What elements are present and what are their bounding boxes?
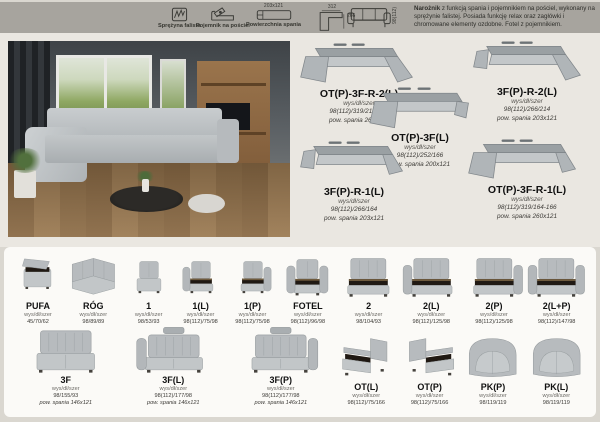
module-size-label: wys/dł/szer bbox=[461, 393, 524, 400]
configuration-sleep-size: pow. spania 203x121 bbox=[284, 215, 424, 223]
sofa-height-value: 98(112) bbox=[393, 7, 398, 24]
module-dimensions: 98/155/93 bbox=[12, 393, 120, 400]
module-card: PK(L) wys/dł/szer 98/119/119 bbox=[525, 333, 588, 407]
module-size-label: wys/dł/szer bbox=[12, 312, 64, 319]
room-photo bbox=[8, 41, 290, 237]
configuration-dimensions: 98(112)/319/164-166 bbox=[454, 204, 600, 212]
module-sleep-size: pow. spania 146x121 bbox=[227, 400, 335, 407]
module-name: 3F bbox=[12, 375, 120, 386]
module-dimensions: 98(112)/75/166 bbox=[398, 400, 461, 407]
module-name: 1 bbox=[123, 301, 175, 312]
module-name: 2(L+P) bbox=[525, 301, 588, 312]
coffee-table bbox=[110, 186, 183, 211]
module-dimensions: 98/119/119 bbox=[461, 400, 524, 407]
shelf bbox=[201, 83, 266, 86]
module-card: 3F wys/dł/szer 98/155/93 pow. spania 146… bbox=[12, 326, 120, 407]
module-size-label: wys/dł/szer bbox=[227, 386, 335, 393]
configuration-sleep-size: pow. spania 260x121 bbox=[454, 213, 600, 221]
module-size-label: wys/dł/szer bbox=[398, 393, 461, 400]
module-dimensions: 98(112)/147/98 bbox=[525, 319, 588, 326]
module-size-label: wys/dł/szer bbox=[525, 312, 588, 319]
sofa-module-icon bbox=[175, 250, 227, 300]
module-card: 3F(L) wys/dł/szer 98(112)/177/98 pow. sp… bbox=[120, 326, 228, 407]
sofa-front-icon bbox=[346, 5, 392, 29]
sofa-module-icon bbox=[335, 333, 398, 381]
floor-plant bbox=[14, 170, 37, 197]
module-size-label: wys/dł/szer bbox=[123, 312, 175, 319]
module-dimensions: 98(112)/125/98 bbox=[463, 319, 526, 326]
legend-bar: Sprężyna falista Pojemnik na pościel 203… bbox=[0, 2, 600, 33]
sofa-module-icon bbox=[463, 250, 526, 300]
module-dimensions: 98(112)/75/98 bbox=[227, 319, 279, 326]
module-size-label: wys/dł/szer bbox=[175, 312, 227, 319]
corner-sofa-icon bbox=[285, 39, 433, 87]
product-description-lead: Narożnik bbox=[414, 5, 440, 12]
configuration-size-label: wys/dł/szer bbox=[284, 198, 424, 206]
module-dimensions: 98(112)/75/166 bbox=[335, 400, 398, 407]
legend-label: Pojemnik na pościel bbox=[196, 23, 250, 29]
sofa-spec: 98(112) bbox=[346, 5, 400, 29]
module-sleep-size: pow. spania 146x121 bbox=[120, 400, 228, 407]
module-card: PUFA wys/dł/szer 45/70/62 bbox=[12, 250, 64, 326]
module-size-label: wys/dł/szer bbox=[64, 312, 123, 319]
module-name: OT(L) bbox=[335, 382, 398, 393]
sofa-module-icon bbox=[64, 250, 123, 300]
sofa-module-icon bbox=[227, 250, 279, 300]
module-size-label: wys/dł/szer bbox=[525, 393, 588, 400]
module-card: OT(P) wys/dł/szer 98(112)/75/166 bbox=[398, 333, 461, 407]
corner-sofa-icon bbox=[458, 37, 596, 85]
module-size-label: wys/dł/szer bbox=[335, 393, 398, 400]
corner-sofa-seat bbox=[45, 135, 228, 162]
module-name: RÓG bbox=[64, 301, 123, 312]
module-size-label: wys/dł/szer bbox=[227, 312, 279, 319]
module-card: 2 wys/dł/szer 98/104/93 bbox=[337, 250, 400, 326]
module-card: 1(L) wys/dł/szer 98(112)/75/98 bbox=[175, 250, 227, 326]
legend-item-spring: Sprężyna falista bbox=[158, 7, 201, 29]
module-dimensions: 98(112)/177/98 bbox=[120, 393, 228, 400]
configuration-name: OT(P)-3F-R-1(L) bbox=[454, 184, 600, 196]
module-dimensions: 98/104/93 bbox=[337, 319, 400, 326]
sofa-module-icon bbox=[337, 250, 400, 300]
module-card: OT(L) wys/dł/szer 98(112)/75/166 bbox=[335, 333, 398, 407]
module-size-label: wys/dł/szer bbox=[12, 386, 120, 393]
module-name: 2 bbox=[337, 301, 400, 312]
module-dimensions: 98/53/93 bbox=[123, 319, 175, 326]
module-dimensions: 98(112)/75/98 bbox=[175, 319, 227, 326]
sofa-module-icon bbox=[12, 250, 64, 300]
module-name: 3F(P) bbox=[227, 375, 335, 386]
modules-panel: PUFA wys/dł/szer 45/70/62 RÓG wys/dł/sze… bbox=[4, 247, 596, 417]
sofa-module-icon bbox=[227, 326, 335, 374]
sofa-module-icon bbox=[120, 326, 228, 374]
module-name: 1(L) bbox=[175, 301, 227, 312]
module-sleep-size: pow. spania 146x121 bbox=[12, 400, 120, 407]
sofa-module-icon bbox=[12, 326, 120, 374]
module-card: 1 wys/dł/szer 98/53/93 bbox=[123, 250, 175, 326]
sofa-module-icon bbox=[278, 250, 337, 300]
modules-row-1: PUFA wys/dł/szer 45/70/62 RÓG wys/dł/sze… bbox=[12, 250, 588, 326]
configuration-size-label: wys/dł/szer bbox=[454, 196, 600, 204]
legend-label: Sprężyna falista bbox=[158, 23, 201, 29]
sofa-module-icon bbox=[400, 250, 463, 300]
module-size-label: wys/dł/szer bbox=[278, 312, 337, 319]
module-name: PUFA bbox=[12, 301, 64, 312]
legend-label: Powierzchnia spania bbox=[246, 22, 301, 28]
module-name: 2(P) bbox=[463, 301, 526, 312]
module-card: 2(P) wys/dł/szer 98(112)/125/98 bbox=[463, 250, 526, 326]
legend-item-storage: Pojemnik na pościel bbox=[196, 6, 250, 29]
configuration-card: OT(P)-3F-R-1(L) wys/dł/szer 98(112)/319/… bbox=[454, 135, 600, 221]
module-size-label: wys/dł/szer bbox=[120, 386, 228, 393]
module-card: 2(L) wys/dł/szer 98(112)/125/98 bbox=[400, 250, 463, 326]
module-name: 1(P) bbox=[227, 301, 279, 312]
module-dimensions: 98/119/119 bbox=[525, 400, 588, 407]
module-size-label: wys/dł/szer bbox=[337, 312, 400, 319]
module-dimensions: 98/89/89 bbox=[64, 319, 123, 326]
configuration-name: 3F(P)-R-1(L) bbox=[284, 186, 424, 198]
bedding-storage-icon bbox=[210, 6, 236, 22]
corner-dimensions-icon bbox=[318, 10, 346, 32]
wavy-spring-icon bbox=[171, 7, 188, 22]
module-size-label: wys/dł/szer bbox=[463, 312, 526, 319]
corner-sofa-icon bbox=[352, 83, 488, 131]
module-name: 2(L) bbox=[400, 301, 463, 312]
module-dimensions: 98(112)/177/98 bbox=[227, 393, 335, 400]
product-description: Narożnik z funkcją spania i pojemnikiem … bbox=[414, 5, 596, 29]
module-name: FOTEL bbox=[278, 301, 337, 312]
sofa-module-icon bbox=[525, 333, 588, 381]
module-card: RÓG wys/dł/szer 98/89/89 bbox=[64, 250, 123, 326]
module-card: PK(P) wys/dł/szer 98/119/119 bbox=[461, 333, 524, 407]
module-dimensions: 45/70/62 bbox=[12, 319, 64, 326]
catalog-page: Sprężyna falista Pojemnik na pościel 203… bbox=[0, 0, 600, 422]
module-name: PK(P) bbox=[461, 382, 524, 393]
sofa-module-icon bbox=[398, 333, 461, 381]
vase bbox=[142, 179, 149, 192]
module-dimensions: 98(112)/96/98 bbox=[278, 319, 337, 326]
module-card: FOTEL wys/dł/szer 98(112)/96/98 bbox=[278, 250, 337, 326]
configuration-dimensions: 98(112)/266/164 bbox=[284, 206, 424, 214]
module-card: 3F(P) wys/dł/szer 98(112)/177/98 pow. sp… bbox=[227, 326, 335, 407]
module-name: 3F(L) bbox=[120, 375, 228, 386]
sofa-module-icon bbox=[461, 333, 524, 381]
configuration-card: 3F(P)-R-1(L) wys/dł/szer 98(112)/266/164… bbox=[284, 137, 424, 223]
corner-sofa-icon bbox=[284, 137, 424, 185]
sofa-module-icon bbox=[123, 250, 175, 300]
modules-row-2: 3F wys/dł/szer 98/155/93 pow. spania 146… bbox=[12, 326, 588, 407]
module-card: 1(P) wys/dł/szer 98(112)/75/98 bbox=[227, 250, 279, 326]
module-dimensions: 98(112)/125/98 bbox=[400, 319, 463, 326]
main-section: OT(P)-3F-R-2(L) wys/dł/szer 98(112)/319/… bbox=[0, 33, 600, 247]
module-size-label: wys/dł/szer bbox=[400, 312, 463, 319]
legend-item-sleeping-surface: 203x121 Powierzchnia spania bbox=[246, 4, 301, 28]
corner-sofa-icon bbox=[454, 135, 600, 183]
module-name: PK(L) bbox=[525, 382, 588, 393]
sofa-module-icon bbox=[525, 250, 588, 300]
corner-sofa-arm bbox=[217, 119, 240, 162]
module-name: OT(P) bbox=[398, 382, 461, 393]
module-card: 2(L+P) wys/dł/szer 98(112)/147/98 bbox=[525, 250, 588, 326]
product-description-text: z funkcją spania i pojemnikiem na poście… bbox=[414, 5, 595, 28]
sleeping-surface-icon bbox=[256, 9, 292, 21]
